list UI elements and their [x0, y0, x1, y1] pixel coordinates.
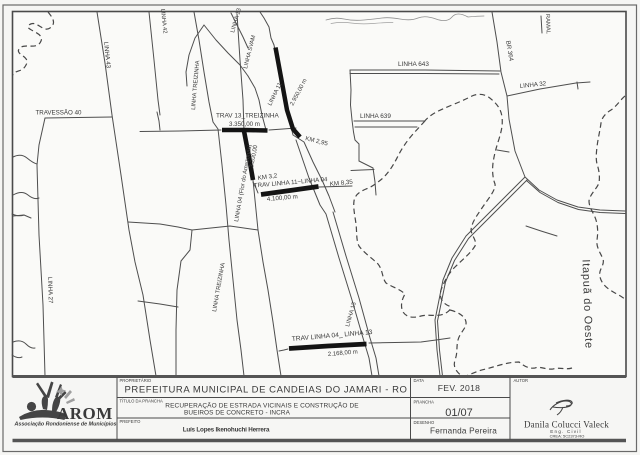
svg-text:PRANCHA: PRANCHA	[414, 400, 435, 405]
svg-text:PREFEITURA MUNICIPAL DE CANDEI: PREFEITURA MUNICIPAL DE CANDEIAS DO JAMA…	[125, 385, 408, 396]
svg-text:AUTOR: AUTOR	[514, 378, 529, 383]
svg-text:3.350,00 m: 3.350,00 m	[229, 121, 260, 128]
svg-text:Luís Lopes Ikenohuchi Herrera: Luís Lopes Ikenohuchi Herrera	[183, 427, 270, 434]
svg-text:CREA: 5C2373-RO: CREA: 5C2373-RO	[550, 434, 585, 439]
svg-text:DATA: DATA	[414, 378, 425, 383]
svg-text:LINHA 639: LINHA 639	[360, 113, 391, 120]
svg-text:LINHA 27: LINHA 27	[46, 277, 54, 304]
svg-text:TRAV 13_TREIZINHA: TRAV 13_TREIZINHA	[216, 113, 279, 120]
svg-text:LINHA 643: LINHA 643	[398, 61, 429, 68]
svg-text:PREFEITO: PREFEITO	[120, 419, 142, 424]
svg-text:BUEIROS DE CONCRETO - INCRA: BUEIROS DE CONCRETO - INCRA	[184, 410, 291, 417]
svg-text:PROPRIETÁRIO: PROPRIETÁRIO	[120, 378, 152, 383]
svg-text:TÍTULO DA PRANCHA: TÍTULO DA PRANCHA	[120, 399, 163, 404]
svg-text:RAMAL: RAMAL	[544, 14, 551, 35]
svg-text:Danila Colucci Valeck: Danila Colucci Valeck	[524, 420, 609, 430]
svg-text:Fernanda Pereira: Fernanda Pereira	[430, 427, 497, 436]
svg-text:01/07: 01/07	[445, 407, 473, 419]
svg-text:AROM: AROM	[57, 404, 113, 423]
svg-text:TRAVESSÃO 40: TRAVESSÃO 40	[36, 110, 83, 117]
svg-text:FEV. 2018: FEV. 2018	[438, 383, 481, 393]
svg-text:RECUPERAÇÃO DE ESTRADA VICINAI: RECUPERAÇÃO DE ESTRADA VICINAIS E CONSTR…	[165, 401, 359, 410]
svg-text:DESENHO: DESENHO	[414, 420, 435, 425]
svg-text:Associação Rondoniense de Muni: Associação Rondoniense de Municípios	[13, 422, 116, 428]
